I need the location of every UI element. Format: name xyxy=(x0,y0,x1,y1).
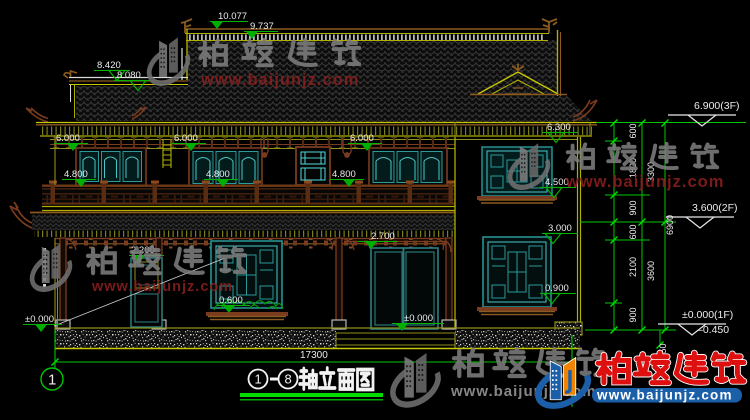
svg-text:1: 1 xyxy=(255,372,262,387)
svg-text:9.737: 9.737 xyxy=(250,21,274,32)
svg-text:2100: 2100 xyxy=(628,257,638,277)
svg-text:10.077: 10.077 xyxy=(218,11,247,22)
svg-text:900: 900 xyxy=(628,307,638,322)
svg-text:3.600(2F): 3.600(2F) xyxy=(692,202,738,214)
svg-text:0.600: 0.600 xyxy=(219,295,243,306)
svg-text:8.080: 8.080 xyxy=(117,70,141,81)
svg-text:www.baijunjz.com: www.baijunjz.com xyxy=(91,279,233,295)
svg-text:6.000: 6.000 xyxy=(56,133,80,144)
svg-text:0.900: 0.900 xyxy=(545,283,569,294)
svg-text:www.baijunjz.com: www.baijunjz.com xyxy=(565,173,724,191)
svg-text:6.900(3F): 6.900(3F) xyxy=(694,100,740,112)
svg-text:600: 600 xyxy=(628,224,638,239)
svg-text:3.000: 3.000 xyxy=(548,223,572,234)
svg-text:6900: 6900 xyxy=(665,215,675,235)
svg-text:www.baijunjz.com: www.baijunjz.com xyxy=(596,388,733,403)
svg-text:900: 900 xyxy=(628,200,638,215)
svg-text:6.000: 6.000 xyxy=(174,133,198,144)
svg-text:2.700: 2.700 xyxy=(371,231,395,242)
svg-text:1: 1 xyxy=(48,372,56,389)
svg-text:3600: 3600 xyxy=(646,261,656,281)
svg-text:8: 8 xyxy=(285,372,292,387)
svg-text:±0.000(1F): ±0.000(1F) xyxy=(682,309,733,321)
svg-text:4.800: 4.800 xyxy=(206,169,230,180)
svg-text:6.000: 6.000 xyxy=(350,133,374,144)
svg-text:600: 600 xyxy=(628,123,638,138)
svg-text:6.300: 6.300 xyxy=(547,122,571,133)
svg-text:±0.000: ±0.000 xyxy=(25,314,54,325)
svg-text:±0.000: ±0.000 xyxy=(404,313,433,324)
svg-text:–0.450: –0.450 xyxy=(697,324,729,336)
svg-text:www.baijunjz.com: www.baijunjz.com xyxy=(200,71,359,89)
svg-text:17300: 17300 xyxy=(300,350,328,361)
svg-text:4.800: 4.800 xyxy=(332,169,356,180)
svg-text:4.800: 4.800 xyxy=(64,169,88,180)
